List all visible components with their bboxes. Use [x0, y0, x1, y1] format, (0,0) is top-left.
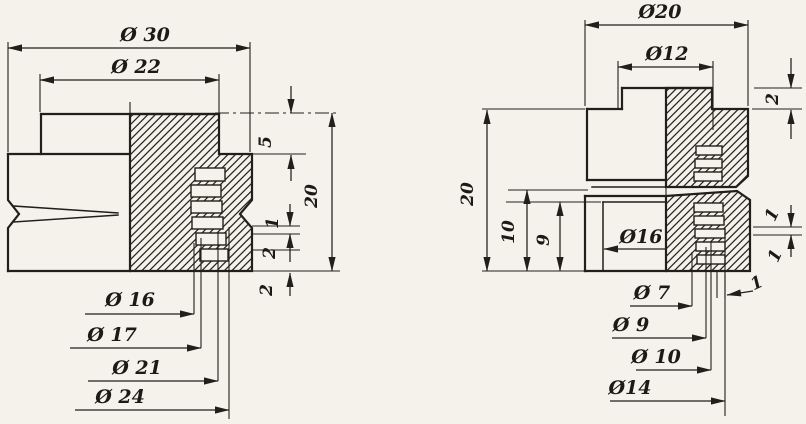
- leader-label-dia7: Ø 7: [633, 282, 670, 304]
- leader-label-dia14: Ø14: [608, 377, 652, 399]
- dim-label-2b: 2: [257, 284, 277, 297]
- dim-label-dia30: Ø 30: [119, 24, 170, 46]
- technical-drawing: Ø 30 Ø 22 5 20: [0, 0, 806, 424]
- dim-label-9: 9: [534, 234, 554, 246]
- right-view-cavity-slots: [694, 146, 725, 264]
- dim-label-10: 10: [499, 220, 519, 244]
- dim-label-dia12: Ø12: [645, 43, 689, 65]
- dim-label-5: 5: [256, 136, 276, 148]
- dim-label-1b: 1: [764, 246, 787, 265]
- dim-right-dia-body: Ø16: [604, 226, 667, 249]
- dim-label-r20: 20: [458, 182, 478, 207]
- dim-label-1: 1: [263, 217, 283, 229]
- dim-left-step-chain: 1 2 2: [252, 204, 300, 297]
- dim-right-height-9: 9: [506, 202, 601, 271]
- leader-label-dia17: Ø 17: [86, 324, 137, 346]
- left-view: Ø 30 Ø 22 5 20: [8, 24, 340, 419]
- groove-line: [14, 215, 118, 222]
- dim-label-2a: 2: [260, 247, 280, 260]
- dim-right-tooth-chain: 1 1: [753, 205, 802, 265]
- right-view: Ø20 Ø12 2 20 10: [458, 1, 802, 416]
- dim-label-dia20: Ø20: [638, 1, 682, 23]
- leader-label-dia10: Ø 10: [630, 346, 681, 368]
- leader-label-dia24: Ø 24: [94, 386, 145, 408]
- dim-label-1a: 1: [761, 205, 784, 224]
- leader-label-dia21: Ø 21: [111, 357, 162, 379]
- dim-label-2: 2: [763, 93, 783, 106]
- dim-right-tooth-width: 1: [717, 271, 766, 298]
- dim-label-dia22: Ø 22: [110, 56, 161, 78]
- dim-right-lip-height: 2: [752, 58, 802, 139]
- dim-label-20: 20: [302, 184, 322, 209]
- drawing-sheet: Ø 30 Ø 22 5 20: [0, 0, 806, 424]
- leader-label-dia16: Ø 16: [104, 289, 155, 311]
- dim-label-dia16b: Ø16: [619, 226, 663, 248]
- groove-line: [14, 206, 118, 213]
- leader-label-dia9: Ø 9: [612, 314, 649, 336]
